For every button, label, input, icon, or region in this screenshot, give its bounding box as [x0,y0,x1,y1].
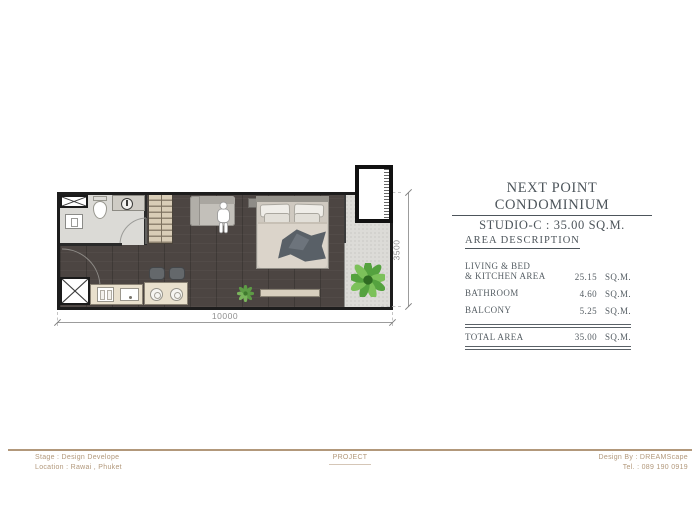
area-rows: LIVING & BED & KITCHEN AREA 25.15 SQ.M. … [465,261,631,316]
dimension-line [408,192,409,307]
area-row-label: LIVING & BED & KITCHEN AREA [465,261,551,283]
dimension-width-label: 10000 [57,311,393,321]
floor-plan-sheet: 10000 3500 NEXT POINT CONDOMINIUM STUDIO… [0,0,700,525]
dimension-width: 10000 [57,311,393,331]
ac-ledge [355,165,393,223]
sink-basin-icon [71,218,78,227]
area-row-label: BATHROOM [465,288,551,299]
extension-line [381,306,401,307]
louver-hatch-icon [384,169,389,219]
footer-designer: Design By : DREAMScape Tel. : 089 190 09… [599,453,688,473]
area-row-unit: SQ.M. [597,306,631,316]
service-shaft-icon [60,195,88,208]
bathroom-sink-icon [65,214,83,229]
area-row-value: 25.15 [551,272,597,282]
bathroom [60,195,147,245]
round-basin-icon [121,198,133,210]
headboard-icon [256,196,329,202]
bar-stool-icon [169,267,185,280]
bathroom-wall [60,243,122,246]
blanket-icon [276,226,328,264]
area-row-bathroom: BATHROOM 4.60 SQ.M. [465,288,631,299]
wardrobe-icon [148,195,173,244]
plant-icon [351,263,385,297]
project-label: PROJECT [329,453,372,465]
stove-icon [97,287,114,302]
footer-rule [8,449,692,451]
toilet-icon [93,201,107,219]
basin-icon [150,288,163,301]
sliding-door-track-icon [344,243,345,307]
area-row-value: 5.25 [551,306,597,316]
bar-stool-icon [149,267,165,280]
person-figure-icon [215,201,232,234]
basin-icon [170,288,183,301]
total-label: TOTAL AREA [465,332,551,343]
total-area-row: TOTAL AREA 35.00 SQ.M. [465,328,631,347]
dimension-tick [405,303,412,310]
area-row-label: BALCONY [465,305,551,316]
area-row-unit: SQ.M. [597,272,631,282]
tv-console-icon [260,289,320,297]
title-block: NEXT POINT CONDOMINIUM STUDIO-C : 35.00 … [452,180,652,233]
wardrobe-rail-icon [161,195,162,243]
dimension-height-label: 3500 [391,239,401,260]
faucet-icon [129,296,132,299]
kitchen-sink-icon [120,288,139,301]
area-row-unit: SQ.M. [597,289,631,299]
area-row-value: 4.60 [551,289,597,299]
sliding-door-icon [344,195,346,243]
refrigerator-icon [60,277,90,305]
vanity-counter-icon [112,195,145,211]
project-title: NEXT POINT CONDOMINIUM [452,180,652,216]
tel-label: Tel. : 089 190 0919 [599,463,688,473]
bathroom-door-arc-icon [118,217,148,245]
table-rule [465,346,631,350]
area-description-heading: AREA DESCRIPTION [465,235,580,249]
total-unit: SQ.M. [597,332,631,342]
area-row-label-line2: & KITCHEN AREA [465,271,546,281]
dimension-line [57,322,393,323]
floor-plan-drawing [57,165,393,310]
footer-project: PROJECT [0,453,700,465]
unit-outline [57,192,393,310]
area-description-table: AREA DESCRIPTION LIVING & BED & KITCHEN … [465,230,631,350]
bed-icon [256,196,329,269]
total-value: 35.00 [551,332,597,342]
kitchen-counter [90,284,143,305]
area-row-label-line1: LIVING & BED [465,261,530,271]
dimension-height: 3500 [394,192,416,307]
sofa-chaise-icon [190,196,200,226]
area-row-balcony: BALCONY 5.25 SQ.M. [465,305,631,316]
plant-icon [237,285,254,302]
kitchen-island [144,282,188,305]
design-by-label: Design By : DREAMScape [599,453,688,463]
area-row-living: LIVING & BED & KITCHEN AREA 25.15 SQ.M. [465,261,631,283]
faucet-icon [126,200,128,206]
